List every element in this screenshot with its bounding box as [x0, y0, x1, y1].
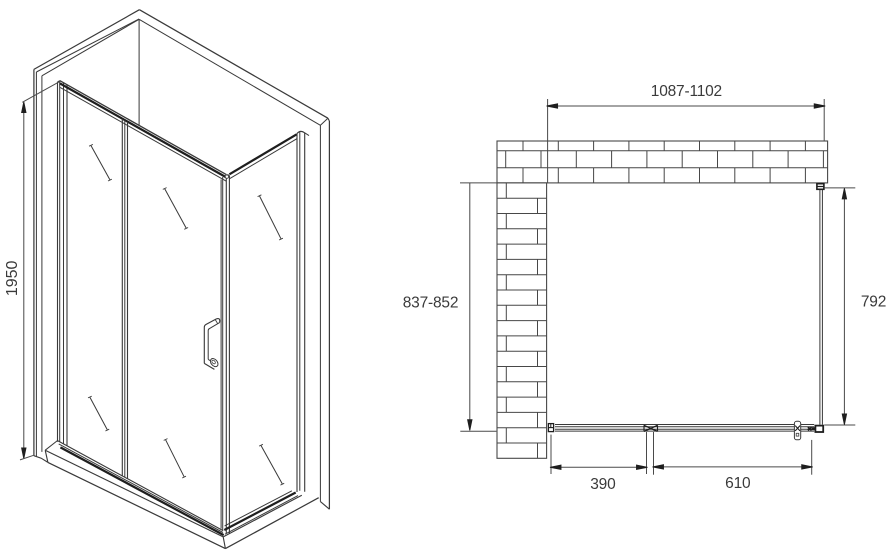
svg-text:1087-1102: 1087-1102	[651, 83, 722, 100]
svg-text:837-852: 837-852	[403, 295, 458, 312]
svg-text:610: 610	[725, 475, 751, 492]
svg-text:792: 792	[861, 294, 886, 311]
svg-text:390: 390	[590, 476, 616, 493]
svg-text:1950: 1950	[4, 261, 21, 297]
